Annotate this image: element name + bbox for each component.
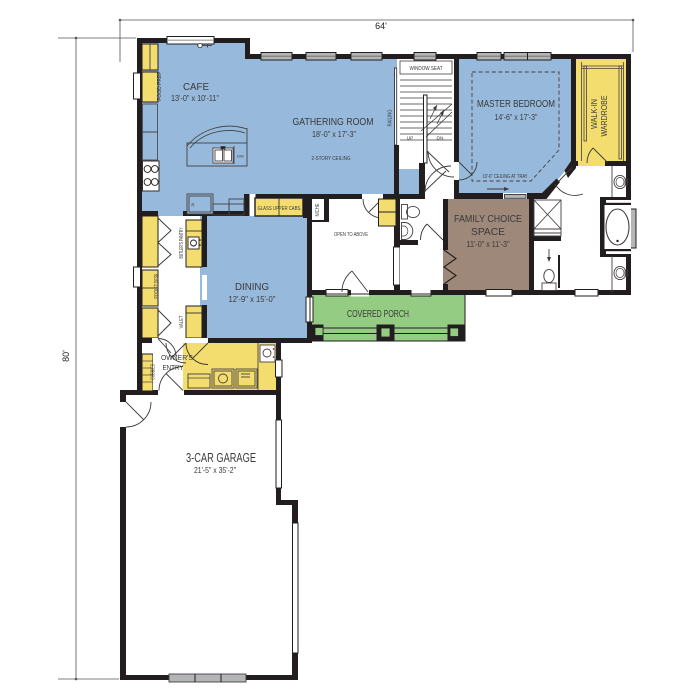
svg-text:DW: DW bbox=[237, 154, 244, 159]
svg-text:CUBBIES: CUBBIES bbox=[151, 364, 157, 380]
svg-text:64': 64' bbox=[375, 21, 387, 31]
svg-text:RAILING: RAILING bbox=[388, 109, 394, 126]
svg-text:FAMILY CHOICE: FAMILY CHOICE bbox=[454, 214, 522, 225]
svg-text:COVERED PORCH: COVERED PORCH bbox=[347, 309, 409, 320]
svg-text:UP: UP bbox=[407, 136, 414, 142]
svg-text:OPEN TO ABOVE: OPEN TO ABOVE bbox=[334, 232, 368, 238]
svg-text:3-CAR GARAGE: 3-CAR GARAGE bbox=[186, 450, 256, 465]
svg-text:WARDROBE: WARDROBE bbox=[600, 96, 609, 137]
svg-text:VALET: VALET bbox=[179, 316, 185, 329]
svg-text:CAFE: CAFE bbox=[183, 82, 209, 93]
svg-text:DINING: DINING bbox=[235, 282, 269, 293]
svg-text:11'-0" x 11'-3": 11'-0" x 11'-3" bbox=[467, 240, 510, 249]
svg-text:FOOD PREP: FOOD PREP bbox=[157, 71, 163, 101]
svg-text:80': 80' bbox=[61, 350, 71, 362]
svg-text:WALK-IN: WALK-IN bbox=[590, 99, 599, 129]
svg-text:BUTLER'S PANTRY: BUTLER'S PANTRY bbox=[179, 227, 185, 258]
svg-text:GLASS UPPER CABS.: GLASS UPPER CABS. bbox=[258, 206, 302, 212]
svg-text:DN: DN bbox=[437, 136, 444, 142]
svg-text:18'-0" x 17'-3": 18'-0" x 17'-3" bbox=[312, 130, 356, 139]
svg-text:MASTER BEDROOM: MASTER BEDROOM bbox=[477, 99, 555, 110]
svg-text:OWNER'S: OWNER'S bbox=[161, 353, 193, 362]
svg-text:ENTRY: ENTRY bbox=[163, 363, 184, 372]
svg-text:GATHERING ROOM: GATHERING ROOM bbox=[293, 117, 374, 128]
svg-text:NICHE: NICHE bbox=[315, 203, 321, 217]
svg-text:21'-5" x 35'-2": 21'-5" x 35'-2" bbox=[194, 466, 236, 475]
svg-text:SPACE: SPACE bbox=[471, 227, 505, 238]
svg-text:POCKET DESK: POCKET DESK bbox=[154, 273, 160, 298]
svg-text:WINDOW SEAT: WINDOW SEAT bbox=[410, 66, 443, 72]
svg-text:2-STORY CEILING: 2-STORY CEILING bbox=[312, 156, 351, 162]
svg-text:12'-9" x 15'-0": 12'-9" x 15'-0" bbox=[229, 295, 276, 304]
svg-text:13'-0" x 10'-11": 13'-0" x 10'-11" bbox=[171, 94, 219, 103]
svg-text:10'-6" CEILING AT TRAY: 10'-6" CEILING AT TRAY bbox=[483, 174, 528, 180]
svg-text:14'-6" x 17'-3": 14'-6" x 17'-3" bbox=[495, 113, 538, 122]
